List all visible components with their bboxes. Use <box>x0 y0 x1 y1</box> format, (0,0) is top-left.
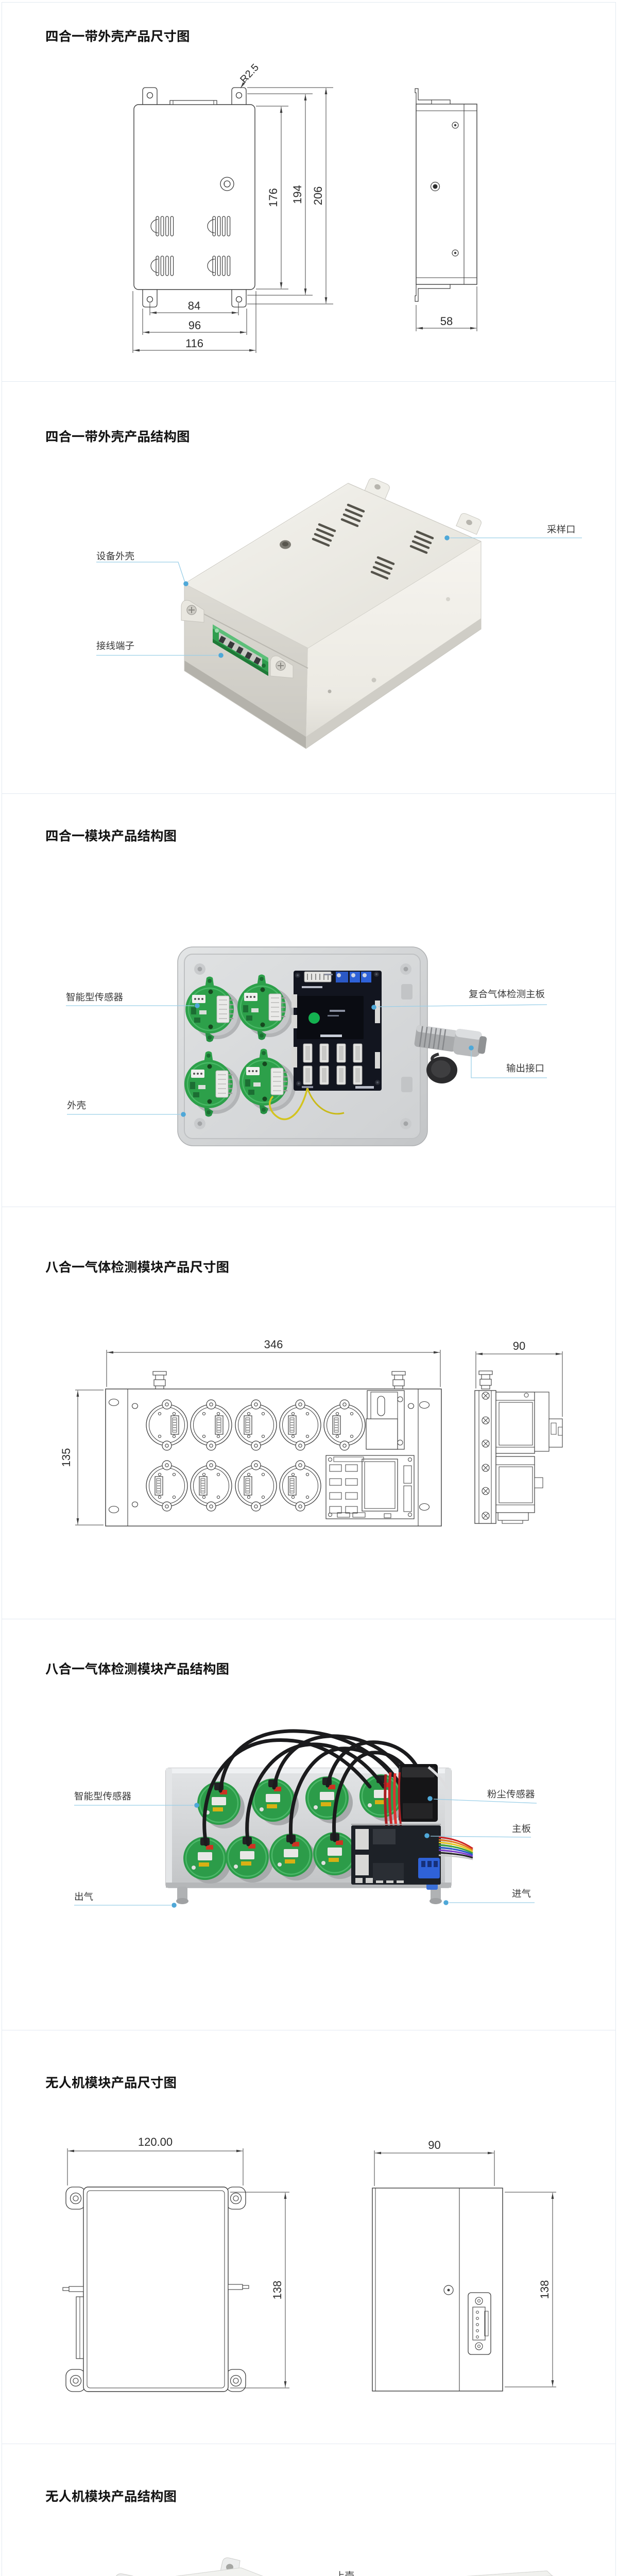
svg-text:84: 84 <box>188 299 200 312</box>
svg-text:176: 176 <box>267 188 280 207</box>
svg-text:346: 346 <box>264 1338 283 1351</box>
svg-text:194: 194 <box>291 185 304 204</box>
svg-text:138: 138 <box>538 2280 551 2299</box>
svg-text:135: 135 <box>60 1448 73 1467</box>
svg-text:138: 138 <box>271 2281 284 2300</box>
svg-text:58: 58 <box>440 315 453 328</box>
svg-text:116: 116 <box>185 337 203 350</box>
svg-text:96: 96 <box>188 319 201 332</box>
svg-text:120.00: 120.00 <box>138 2136 173 2148</box>
svg-text:90: 90 <box>428 2139 440 2151</box>
svg-text:90: 90 <box>513 1340 525 1352</box>
svg-text:206: 206 <box>312 187 324 206</box>
